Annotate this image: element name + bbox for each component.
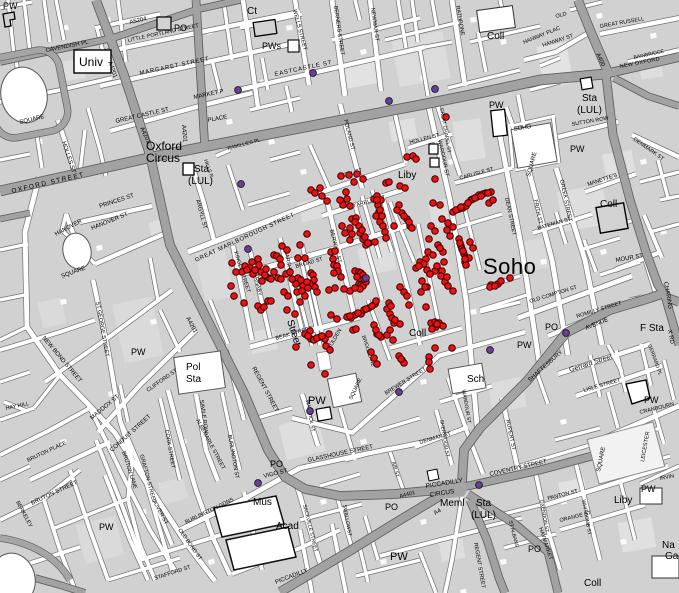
- svg-text:PW: PW: [644, 395, 659, 405]
- svg-text:Coll: Coll: [487, 31, 504, 42]
- svg-text:Coll: Coll: [409, 328, 426, 339]
- svg-text:PW: PW: [489, 100, 504, 110]
- svg-text:Circus: Circus: [146, 151, 180, 165]
- svg-text:PW: PW: [517, 340, 532, 350]
- svg-text:(LUL): (LUL): [577, 105, 602, 116]
- svg-text:Univ: Univ: [79, 55, 103, 69]
- svg-text:Sta: Sta: [186, 374, 201, 385]
- svg-text:F Sta: F Sta: [640, 323, 664, 334]
- svg-text:PO: PO: [385, 502, 398, 512]
- svg-text:PWs: PWs: [262, 41, 281, 51]
- svg-text:Ct: Ct: [247, 6, 257, 17]
- svg-text:PW: PW: [641, 484, 656, 494]
- svg-text:PW: PW: [390, 551, 408, 563]
- svg-text:(LUL): (LUL): [471, 510, 496, 521]
- svg-text:Liby: Liby: [398, 170, 416, 181]
- svg-text:Pol: Pol: [186, 362, 200, 373]
- svg-text:Coll: Coll: [584, 578, 601, 589]
- svg-text:Liby: Liby: [614, 495, 632, 506]
- svg-text:Acad: Acad: [276, 521, 299, 532]
- svg-text:PW: PW: [131, 347, 146, 357]
- svg-text:Sta: Sta: [582, 93, 597, 104]
- svg-text:Sch: Sch: [467, 374, 484, 385]
- svg-text:Na: Na: [662, 540, 675, 551]
- svg-text:Coll: Coll: [600, 199, 617, 210]
- svg-text:PO: PO: [528, 544, 541, 554]
- svg-text:Sta: Sta: [476, 498, 491, 509]
- svg-text:PO: PO: [270, 459, 283, 469]
- svg-text:PW: PW: [3, 1, 18, 11]
- svg-text:Mus: Mus: [253, 497, 272, 508]
- svg-text:Ga: Ga: [665, 551, 679, 562]
- svg-text:Meml: Meml: [440, 498, 464, 509]
- svg-text:PW: PW: [99, 522, 114, 532]
- svg-text:PO: PO: [545, 322, 558, 332]
- svg-text:PW: PW: [570, 144, 585, 154]
